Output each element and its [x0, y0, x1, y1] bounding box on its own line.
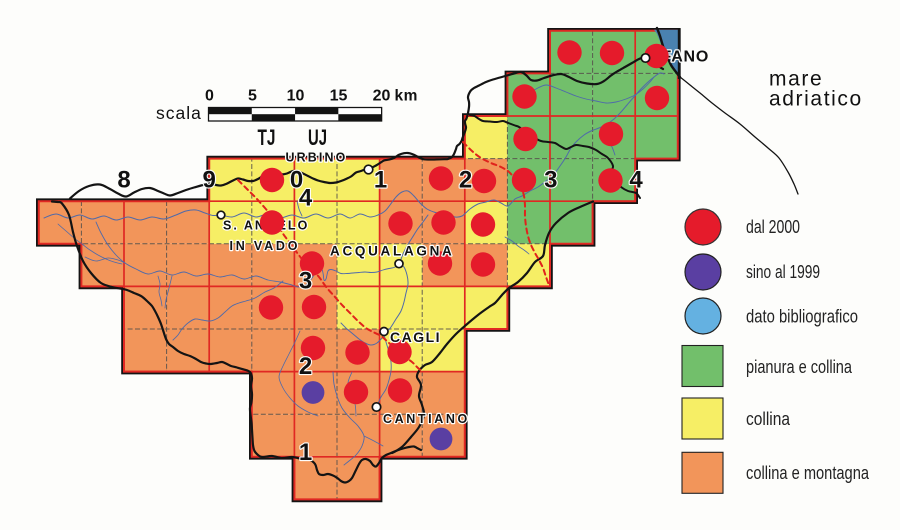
- svg-text:dato bibliografico: dato bibliografico: [746, 307, 858, 327]
- svg-text:0: 0: [205, 88, 214, 105]
- svg-text:3: 3: [544, 167, 557, 194]
- svg-text:TJ: TJ: [258, 125, 276, 150]
- svg-text:pianura e collina: pianura e collina: [746, 357, 853, 377]
- svg-text:4: 4: [299, 185, 313, 212]
- svg-text:5: 5: [248, 88, 257, 105]
- svg-text:3: 3: [299, 268, 312, 295]
- svg-text:adriatico: adriatico: [769, 88, 863, 111]
- svg-text:8: 8: [117, 167, 130, 194]
- svg-text:CAGLI: CAGLI: [390, 329, 441, 345]
- svg-text:dal 2000: dal 2000: [746, 217, 800, 237]
- svg-text:2: 2: [299, 353, 312, 380]
- svg-text:4: 4: [629, 167, 643, 194]
- svg-text:ACQUALAGNA: ACQUALAGNA: [330, 244, 455, 259]
- svg-text:collina: collina: [746, 409, 791, 429]
- svg-text:collina e montagna: collina e montagna: [746, 463, 870, 483]
- svg-text:CANTIANO: CANTIANO: [383, 412, 470, 426]
- svg-text:20: 20: [373, 88, 391, 105]
- svg-text:1: 1: [374, 167, 387, 194]
- svg-text:URBINO: URBINO: [286, 151, 348, 165]
- svg-text:km: km: [395, 88, 418, 105]
- svg-text:sino al 1999: sino al 1999: [746, 262, 820, 282]
- svg-text:10: 10: [287, 88, 305, 105]
- svg-text:9: 9: [203, 167, 216, 194]
- svg-text:IN VADO: IN VADO: [230, 239, 301, 253]
- svg-text:15: 15: [330, 88, 348, 105]
- svg-text:scala: scala: [156, 103, 202, 123]
- svg-text:UJ: UJ: [308, 125, 327, 150]
- svg-text:2: 2: [459, 167, 472, 194]
- svg-text:1: 1: [299, 439, 312, 466]
